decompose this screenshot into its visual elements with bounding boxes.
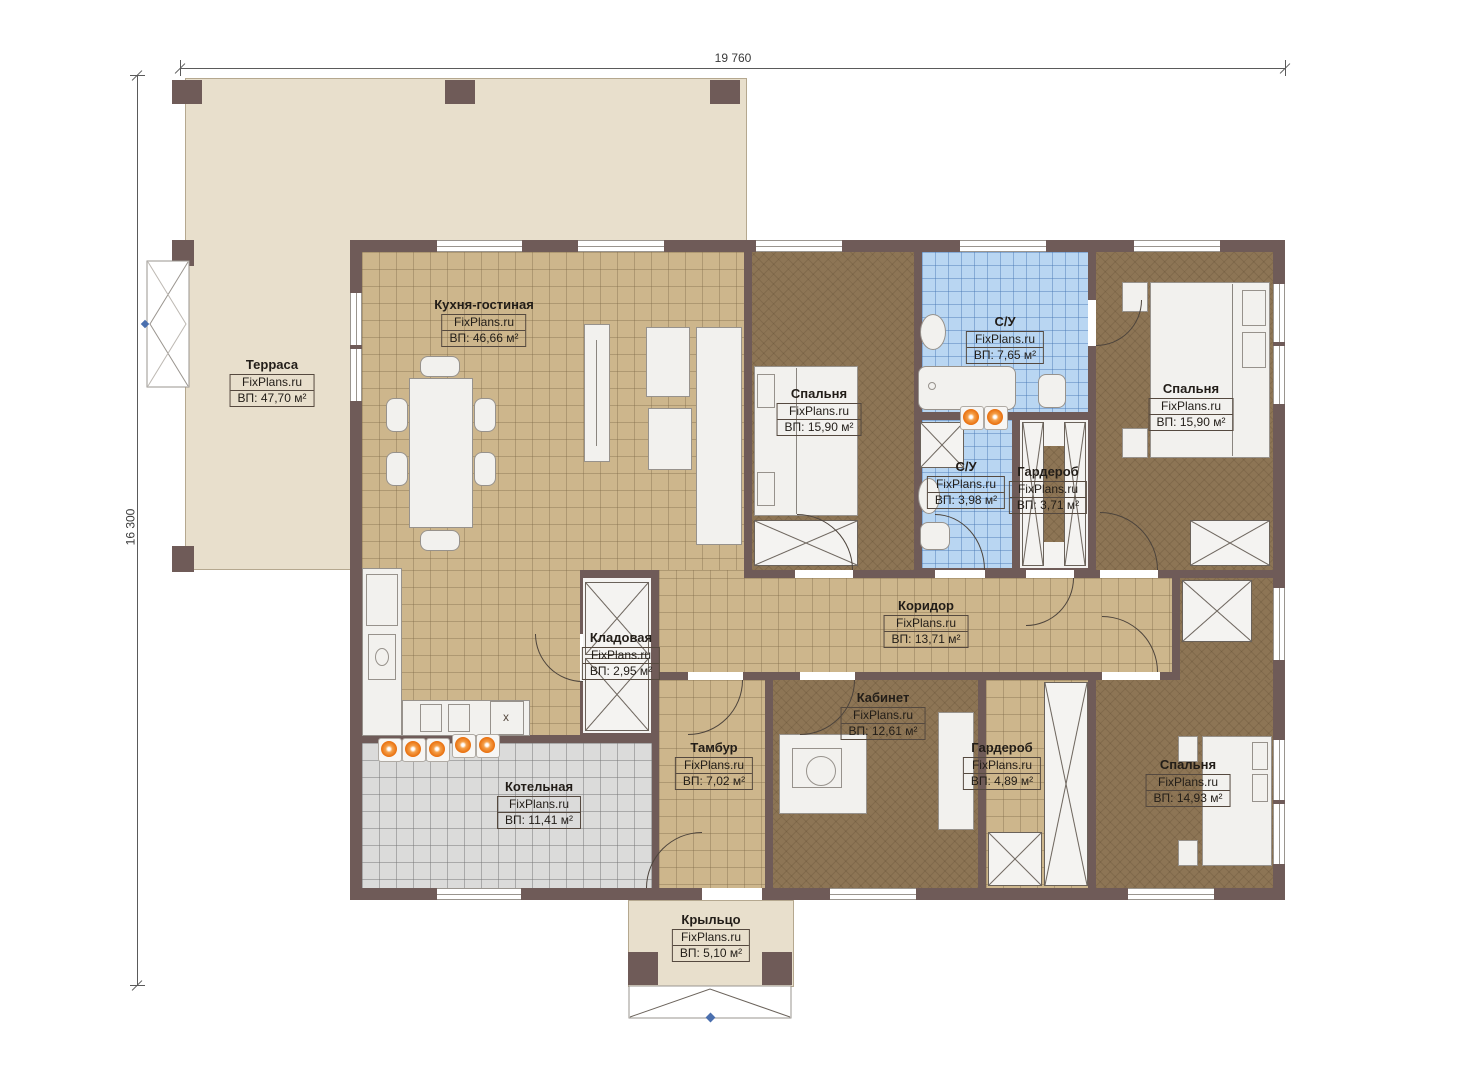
heater-dot [963,409,979,425]
nightstand [1178,840,1198,866]
terrace-column [445,80,475,104]
room-name: Котельная [505,779,573,794]
door-opening [795,570,853,578]
window [1273,588,1285,660]
pillow [1252,774,1268,802]
room-info-box: FixPlans.ru ВП: 14,93 м² [1146,774,1231,807]
dimension-line-top [180,68,1285,69]
room-label-porch: Крыльцо FixPlans.ru ВП: 5,10 м² [672,912,750,962]
room-info-box: FixPlans.ru ВП: 7,02 м² [675,757,753,790]
room-info-box: FixPlans.ru ВП: 2,95 м² [582,647,660,680]
room-info-box: FixPlans.ru ВП: 15,90 м² [1149,398,1234,431]
room-name: Тамбур [690,740,737,755]
pillow [1252,742,1268,770]
burner-dot [381,741,397,757]
sofa [696,327,742,545]
dining-table [409,378,473,528]
room-name: Гардероб [971,740,1032,755]
door-opening [1026,570,1074,578]
room-name: Кухня-гостиная [434,297,534,312]
room-label-corridor: Коридор FixPlans.ru ВП: 13,71 м² [884,598,969,648]
room-label-garderob2: Гардероб FixPlans.ru ВП: 4,89 м² [963,740,1041,790]
tv-stand [584,324,610,462]
wardrobe [1182,580,1252,642]
room-info-box: FixPlans.ru ВП: 47,70 м² [230,374,315,407]
room-label-kabinet: Кабинет FixPlans.ru ВП: 12,61 м² [841,690,926,740]
room-name: Кабинет [857,690,910,705]
entrance-door-opening [702,888,762,900]
chair [386,398,408,432]
room-area: ВП: 11,41 м² [498,813,580,828]
room-label-garderob1: Гардероб FixPlans.ru ВП: 3,71 м² [1009,464,1087,514]
window [1273,346,1285,404]
window [578,240,664,252]
room-area: ВП: 13,71 м² [885,632,968,647]
room-info-box: FixPlans.ru ВП: 11,41 м² [497,796,581,829]
window [437,240,522,252]
office-chair [806,756,836,786]
pillow [757,472,775,506]
washbasin [920,314,946,350]
brand-watermark: FixPlans.ru [778,404,861,420]
wardrobe [988,832,1042,886]
room-info-box: FixPlans.ru ВП: 5,10 м² [672,929,750,962]
room-name: Терраса [246,357,298,372]
window [1128,888,1214,900]
room-label-su1: С/У FixPlans.ru ВП: 7,65 м² [966,314,1044,364]
brand-watermark: FixPlans.ru [673,930,749,946]
room-area: ВП: 15,90 м² [778,420,861,435]
chair [420,356,460,377]
burner-dot [455,737,471,753]
room-area: ВП: 2,95 м² [583,664,659,679]
toilet [1038,374,1066,408]
armchair [646,327,690,397]
terrace-column [172,80,202,104]
room-name: Крыльцо [681,912,740,927]
brand-watermark: FixPlans.ru [1147,775,1230,791]
room-info-box: FixPlans.ru ВП: 46,66 м² [442,314,527,347]
stove-sink-mark: x [503,710,509,724]
brand-watermark: FixPlans.ru [885,616,968,632]
room-area: ВП: 46,66 м² [443,331,526,346]
porch-column [628,952,658,985]
porch-column [762,952,792,985]
room-area: ВП: 4,89 м² [964,774,1040,789]
nightstand [1122,428,1148,458]
window [1273,740,1285,800]
terrace-column [710,80,740,104]
brand-watermark: FixPlans.ru [842,708,925,724]
wardrobe [1190,520,1270,566]
bathtub-drain [928,382,936,390]
room-area: ВП: 47,70 м² [231,391,314,406]
heater-dot [987,409,1003,425]
chair [474,398,496,432]
room-label-kladovaya: Кладовая FixPlans.ru ВП: 2,95 м² [582,630,660,680]
room-area: ВП: 7,65 м² [967,348,1043,363]
window [350,293,362,345]
room-label-su2: С/У FixPlans.ru ВП: 3,98 м² [927,459,1005,509]
brand-watermark: FixPlans.ru [964,758,1040,774]
window [1134,240,1220,252]
brand-watermark: FixPlans.ru [443,315,526,331]
burner-dot [429,741,445,757]
room-label-tambur: Тамбур FixPlans.ru ВП: 7,02 м² [675,740,753,790]
window [756,240,842,252]
pillow [757,374,775,408]
burner-dot [405,741,421,757]
room-info-box: FixPlans.ru ВП: 13,71 м² [884,615,969,648]
room-name: С/У [994,314,1015,329]
pillow [1242,332,1266,368]
room-info-box: FixPlans.ru ВП: 3,98 м² [927,476,1005,509]
tv-screen [596,340,597,446]
brand-watermark: FixPlans.ru [231,375,314,391]
door-opening [800,672,855,680]
window [960,240,1046,252]
room-area: ВП: 14,93 м² [1147,791,1230,806]
room-area: ВП: 15,90 м² [1150,415,1233,430]
room-label-bedroom1: Спальня FixPlans.ru ВП: 15,90 м² [777,386,862,436]
brand-watermark: FixPlans.ru [1150,399,1233,415]
appliance [420,704,442,732]
room-name: Спальня [791,386,847,401]
brand-watermark: FixPlans.ru [498,797,580,813]
brand-watermark: FixPlans.ru [928,477,1004,493]
window [1273,284,1285,342]
room-name: Спальня [1163,381,1219,396]
window [350,349,362,401]
room-label-kotelnaya: Котельная FixPlans.ru ВП: 11,41 м² [497,779,581,829]
door-opening [688,672,743,680]
room-info-box: FixPlans.ru ВП: 15,90 м² [777,403,862,436]
brand-watermark: FixPlans.ru [967,332,1043,348]
room-info-box: FixPlans.ru ВП: 4,89 м² [963,757,1041,790]
window [830,888,916,900]
coffee-table [648,408,692,470]
pillow [1242,290,1266,326]
chair [474,452,496,486]
door-opening [1102,672,1160,680]
window [1273,804,1285,864]
room-area: ВП: 7,02 м² [676,774,752,789]
room-label-bedroom3: Спальня FixPlans.ru ВП: 14,93 м² [1146,757,1231,807]
room-name: Кладовая [590,630,652,645]
room-area: ВП: 3,71 м² [1010,498,1086,513]
terrace-column [172,546,194,572]
chair [386,452,408,486]
dimension-width-label: 19 760 [715,51,752,65]
room-name: Спальня [1160,757,1216,772]
door-opening [935,570,985,578]
room-label-kitchen: Кухня-гостиная FixPlans.ru ВП: 46,66 м² [434,297,534,347]
floor-kitchen-corridor-opening [659,570,744,578]
room-info-box: FixPlans.ru ВП: 3,71 м² [1009,481,1087,514]
room-name: Гардероб [1017,464,1078,479]
wardrobe [1044,682,1088,886]
door-opening [1100,570,1158,578]
dimension-height-label: 16 300 [123,509,137,546]
brand-watermark: FixPlans.ru [676,758,752,774]
brand-watermark: FixPlans.ru [583,648,659,664]
room-name: С/У [955,459,976,474]
room-area: ВП: 3,98 м² [928,493,1004,508]
appliance [448,704,470,732]
fridge [366,574,398,626]
sink-basin [375,648,389,666]
room-label-terrace: Терраса FixPlans.ru ВП: 47,70 м² [230,357,315,407]
room-info-box: FixPlans.ru ВП: 12,61 м² [841,707,926,740]
room-area: ВП: 5,10 м² [673,946,749,961]
terrace-window-icon [146,260,190,388]
room-label-bedroom2: Спальня FixPlans.ru ВП: 15,90 м² [1149,381,1234,431]
brand-watermark: FixPlans.ru [1010,482,1086,498]
burner-dot [479,737,495,753]
room-name: Коридор [898,598,954,613]
floor-plan: 19 760 16 300 [0,0,1474,1080]
room-area: ВП: 12,61 м² [842,724,925,739]
chair [420,530,460,551]
door-opening [1088,300,1096,346]
room-info-box: FixPlans.ru ВП: 7,65 м² [966,331,1044,364]
window [437,888,521,900]
